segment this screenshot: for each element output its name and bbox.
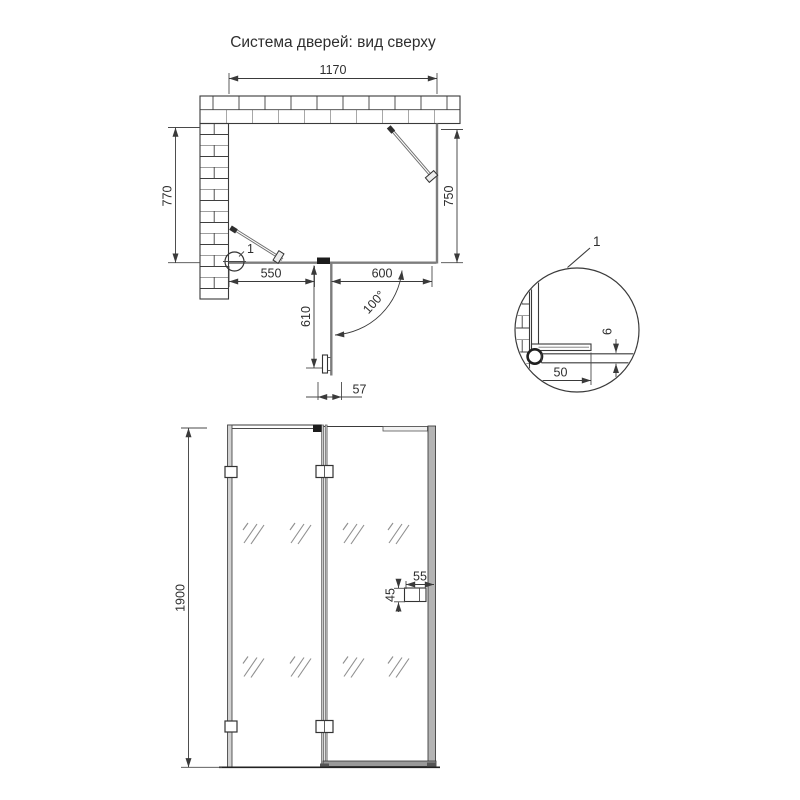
front-top-pivot-block [313,425,322,433]
support-brace-bottom-left [229,226,284,264]
technical-drawing-page: Система дверей: вид сверху [0,0,800,800]
support-brace-top-right [387,125,438,182]
dim-770-text: 770 [161,186,175,207]
dim-750: 750 [441,130,463,263]
glass-hatch-mark [243,523,264,544]
dim-1170: 1170 [229,63,437,94]
front-right-wall-profile [428,426,436,767]
dim-6-text: 6 [601,328,615,335]
left-wall-brick [200,124,229,300]
detail-label: 1 [593,234,601,249]
dim-angle-text: 100° [360,288,388,317]
front-bottom-sill [323,761,436,767]
detail-leader-line [568,248,591,268]
dim-770: 770 [161,128,201,263]
dim-50-text: 50 [554,366,568,380]
dim-610-text: 610 [299,306,313,327]
wall-hinge-bottom [225,721,237,732]
wall-hinge-top [225,467,237,478]
dim-55-text: 55 [413,570,427,584]
dim-600-text: 600 [372,267,393,281]
dim-550-text: 550 [261,267,282,281]
detail-marker-text: 1 [247,242,254,256]
door-system-drawing: Система дверей: вид сверху [0,0,800,800]
front-view: 1900 55 45 [174,425,441,769]
dim-750-text: 750 [442,186,456,207]
glass-hatch-mark [343,523,364,544]
detail-hinge-knuckle [528,349,542,363]
dim-550: 550 [229,266,315,287]
glass-hatch-mark [388,523,409,544]
dim-610: 610 [299,266,322,369]
door-hinge-bottom [316,721,333,733]
front-sill-foot-right [427,763,436,768]
detail-wall-profile-vertical [532,282,539,351]
door-hinge-block [317,258,330,265]
top-wall-brick [200,96,460,124]
front-top-support-bar [383,427,428,432]
dim-1900-text: 1900 [174,584,188,612]
dim-1170-text: 1170 [320,63,347,77]
detail-wall-brick [509,262,530,402]
glass-hatch-mark [388,657,409,678]
dim-57: 57 [306,382,366,400]
drawing-title: Система дверей: вид сверху [230,34,436,51]
dim-45-text: 45 [384,588,398,602]
dim-45: 45 [384,579,406,612]
door-handle-front [405,588,427,602]
detail-view: 1 6 [509,234,639,402]
dim-600: 600 [332,266,433,287]
glass-hatch-mark [243,657,264,678]
top-view: 1170 770 750 550 600 [161,63,464,400]
glass-hatch-mark [343,657,364,678]
dim-57-text: 57 [353,383,367,397]
door-hinge-top [316,466,333,478]
glass-hatch-mark [290,657,311,678]
door-handle-plan [323,355,331,373]
glass-hatch-mark [290,523,311,544]
dim-1900: 1900 [174,428,223,767]
